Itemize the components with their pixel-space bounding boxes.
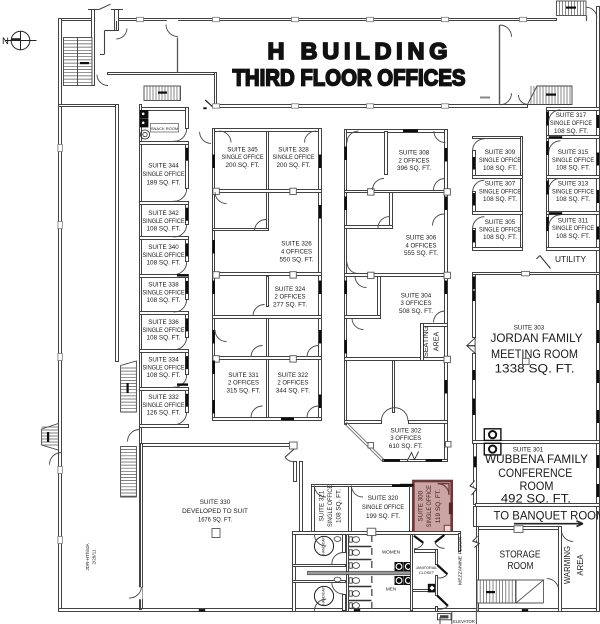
svg-text:SUITE 304: SUITE 304: [401, 292, 432, 299]
svg-text:SUITE 334: SUITE 334: [148, 357, 179, 364]
svg-text:SINGLE OFFICE: SINGLE OFFICE: [550, 120, 592, 127]
svg-text:SUITE 305: SUITE 305: [485, 219, 516, 226]
svg-text:119 SQ. FT.: 119 SQ. FT.: [435, 489, 442, 523]
svg-text:WUBBENA FAMILY: WUBBENA FAMILY: [485, 452, 588, 466]
svg-text:JDR-HThirdA: JDR-HThirdA: [85, 542, 90, 570]
svg-text:SINGLE OFFICE: SINGLE OFFICE: [479, 188, 521, 195]
svg-text:SUITE 330: SUITE 330: [200, 499, 231, 506]
svg-text:SUITE 332: SUITE 332: [148, 394, 179, 401]
svg-text:SUITE 313: SUITE 313: [558, 181, 589, 188]
svg-text:H BUILDING: H BUILDING: [268, 38, 448, 64]
svg-text:WOMEN: WOMEN: [382, 550, 400, 555]
svg-text:108 SQ. FT.: 108 SQ. FT.: [483, 196, 517, 203]
svg-text:SINGLE OFFICE: SINGLE OFFICE: [479, 157, 521, 164]
svg-text:MEN: MEN: [386, 587, 396, 592]
svg-text:108 SQ. FT.: 108 SQ. FT.: [147, 297, 181, 304]
svg-text:SINGLE OFFICE: SINGLE OFFICE: [143, 327, 185, 334]
svg-text:SUITE 300: SUITE 300: [418, 491, 425, 522]
svg-text:SUITE 308: SUITE 308: [399, 150, 430, 157]
svg-text:2/28/11: 2/28/11: [92, 549, 97, 564]
svg-text:SINGLE OFFICE: SINGLE OFFICE: [327, 485, 334, 527]
svg-text:SUITE 303: SUITE 303: [514, 324, 545, 331]
svg-text:ELEVATOR: ELEVATOR: [453, 619, 475, 624]
svg-text:SUITE 307: SUITE 307: [485, 181, 516, 188]
svg-text:315 SQ. FT.: 315 SQ. FT.: [227, 387, 261, 394]
svg-text:SINGLE OFFICE: SINGLE OFFICE: [552, 225, 594, 232]
svg-text:UTILITY: UTILITY: [555, 254, 586, 264]
svg-text:108 SQ. FT.: 108 SQ. FT.: [147, 335, 181, 342]
svg-text:DEVELOPED TO SUIT: DEVELOPED TO SUIT: [182, 508, 248, 515]
svg-text:SINGLE OFFICE: SINGLE OFFICE: [426, 485, 433, 527]
svg-text:TO BANQUET ROOM: TO BANQUET ROOM: [494, 509, 600, 523]
svg-text:SUITE 306: SUITE 306: [406, 235, 437, 242]
svg-text:108 SQ. FT.: 108 SQ. FT.: [147, 226, 181, 233]
svg-text:4 OFFICES: 4 OFFICES: [406, 242, 437, 249]
svg-text:SUITE 324: SUITE 324: [275, 286, 306, 293]
svg-text:126 SQ. FT.: 126 SQ. FT.: [147, 410, 181, 417]
svg-text:CONFERENCE: CONFERENCE: [498, 466, 572, 480]
svg-text:396 SQ. FT.: 396 SQ. FT.: [397, 165, 431, 172]
svg-text:HANDICAP: HANDICAP: [322, 587, 326, 605]
svg-text:MEETING ROOM: MEETING ROOM: [491, 348, 578, 361]
svg-text:CLOSET: CLOSET: [419, 571, 435, 575]
svg-text:SUITE 317: SUITE 317: [556, 112, 587, 119]
svg-text:3 OFFICES: 3 OFFICES: [401, 300, 432, 307]
svg-text:344 SQ. FT.: 344 SQ. FT.: [276, 387, 310, 394]
svg-text:SUITE 331: SUITE 331: [228, 372, 259, 379]
svg-text:108 SQ. FT.: 108 SQ. FT.: [556, 164, 590, 171]
svg-text:SUITE 311: SUITE 311: [558, 218, 589, 225]
svg-text:108 SQ. FT.: 108 SQ. FT.: [336, 489, 343, 523]
svg-text:189 SQ. FT.: 189 SQ. FT.: [147, 180, 181, 187]
svg-text:2 OFFICES: 2 OFFICES: [277, 380, 308, 387]
svg-text:SINGLE OFFICE: SINGLE OFFICE: [143, 289, 185, 296]
svg-text:SUITE 309: SUITE 309: [485, 149, 516, 156]
svg-text:SUITE 345: SUITE 345: [227, 146, 258, 153]
svg-text:SUITE 315: SUITE 315: [558, 149, 589, 156]
svg-text:SINGLE OFFICE: SINGLE OFFICE: [143, 218, 185, 225]
svg-text:277 SQ. FT.: 277 SQ. FT.: [273, 301, 307, 308]
svg-text:SINGLE OFFICE: SINGLE OFFICE: [479, 227, 521, 234]
svg-text:MEZZANINE FLOOR: MEZZANINE FLOOR: [457, 537, 462, 585]
svg-text:SUITE 322: SUITE 322: [278, 372, 309, 379]
svg-text:2 OFFICES: 2 OFFICES: [275, 294, 306, 301]
svg-text:108 SQ. FT.: 108 SQ. FT.: [483, 165, 517, 172]
svg-text:108 SQ. FT.: 108 SQ. FT.: [147, 372, 181, 379]
svg-text:610 SQ. FT.: 610 SQ. FT.: [389, 443, 423, 450]
svg-text:SINGLE OFFICE: SINGLE OFFICE: [273, 154, 315, 161]
svg-text:SINGLE OFFICE: SINGLE OFFICE: [362, 504, 404, 511]
svg-text:108 SQ. FT.: 108 SQ. FT.: [483, 234, 517, 241]
svg-text:2 OFFICES: 2 OFFICES: [399, 157, 430, 164]
svg-text:4 OFFICES: 4 OFFICES: [281, 249, 312, 256]
svg-text:ROOM: ROOM: [508, 561, 534, 572]
svg-text:3 OFFICES: 3 OFFICES: [390, 435, 421, 442]
svg-text:SUITE 342: SUITE 342: [148, 210, 179, 217]
svg-text:SNACK ROOM: SNACK ROOM: [151, 126, 178, 131]
svg-text:SUITE 328: SUITE 328: [278, 146, 309, 153]
svg-text:N: N: [2, 36, 9, 47]
svg-text:108 SQ. FT.: 108 SQ. FT.: [556, 233, 590, 240]
svg-text:200 SQ. FT.: 200 SQ. FT.: [277, 162, 311, 169]
svg-text:AREA: AREA: [432, 332, 441, 352]
svg-text:555 SQ. FT.: 555 SQ. FT.: [404, 250, 438, 257]
svg-text:SUITE 302: SUITE 302: [391, 427, 422, 434]
svg-text:WARMING: WARMING: [563, 546, 572, 584]
svg-text:SUITE 338: SUITE 338: [148, 282, 179, 289]
svg-text:SINGLE OFFICE: SINGLE OFFICE: [552, 188, 594, 195]
svg-text:1676 SQ. FT.: 1676 SQ. FT.: [198, 516, 232, 523]
svg-text:JANITORIAL: JANITORIAL: [416, 566, 438, 570]
svg-text:200 SQ. FT.: 200 SQ. FT.: [226, 162, 260, 169]
svg-text:JORDAN FAMILY: JORDAN FAMILY: [491, 332, 583, 345]
svg-text:SINGLE OFFICE: SINGLE OFFICE: [143, 402, 185, 409]
svg-text:2 OFFICES: 2 OFFICES: [228, 380, 259, 387]
svg-text:199 SQ. FT.: 199 SQ. FT.: [366, 513, 400, 520]
svg-text:SUITE 321: SUITE 321: [319, 490, 326, 521]
svg-text:SINGLE OFFICE: SINGLE OFFICE: [143, 364, 185, 371]
svg-text:550 SQ. FT.: 550 SQ. FT.: [280, 256, 314, 263]
svg-text:SUITE 320: SUITE 320: [368, 495, 399, 502]
svg-text:SINGLE OFFICE: SINGLE OFFICE: [552, 157, 594, 164]
svg-text:508 SQ. FT.: 508 SQ. FT.: [399, 308, 433, 315]
svg-text:1338 SQ. FT.: 1338 SQ. FT.: [495, 362, 575, 375]
svg-text:SUITE 340: SUITE 340: [148, 244, 179, 251]
svg-text:STORAGE: STORAGE: [500, 550, 541, 561]
svg-text:SUITE 336: SUITE 336: [148, 319, 179, 326]
svg-text:108 SQ. FT.: 108 SQ. FT.: [556, 196, 590, 203]
svg-text:SINGLE OFFICE: SINGLE OFFICE: [143, 171, 185, 178]
svg-text:108 SQ. FT.: 108 SQ. FT.: [147, 260, 181, 267]
svg-text:SINGLE OFFICE: SINGLE OFFICE: [143, 252, 185, 259]
svg-text:AREA: AREA: [576, 554, 585, 576]
svg-text:SINGLE OFFICE: SINGLE OFFICE: [222, 154, 264, 161]
svg-text:SUITE 326: SUITE 326: [281, 241, 312, 248]
svg-text:THIRD FLOOR OFFICES: THIRD FLOOR OFFICES: [233, 64, 466, 90]
svg-text:108 SQ. FT.: 108 SQ. FT.: [554, 128, 588, 135]
svg-text:SEATING: SEATING: [421, 326, 430, 357]
svg-text:SUITE 344: SUITE 344: [148, 162, 179, 169]
